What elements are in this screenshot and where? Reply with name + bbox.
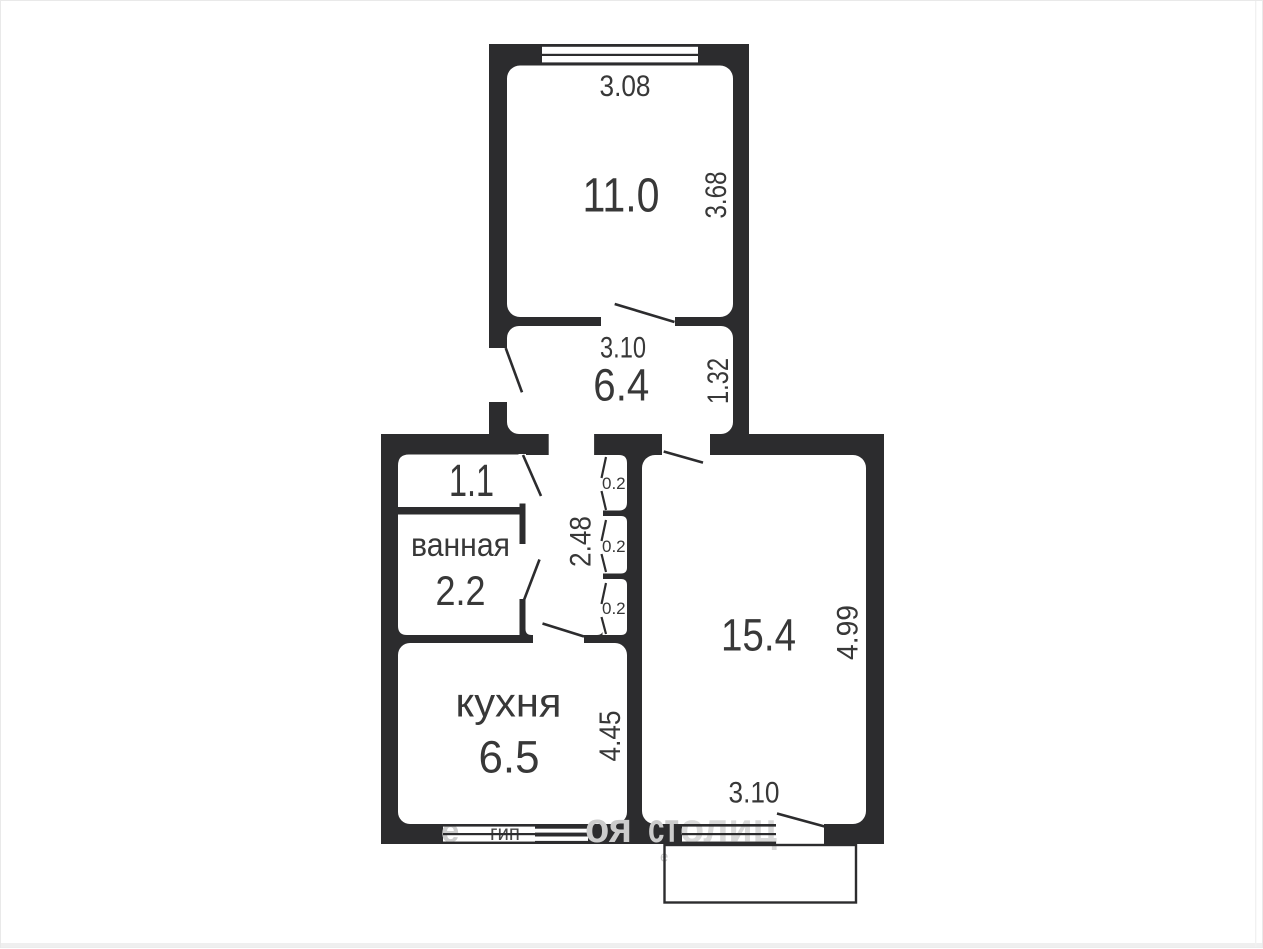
svg-text:4.99: 4.99 bbox=[832, 605, 865, 660]
svg-text:2.2: 2.2 bbox=[436, 567, 486, 614]
svg-text:2.48: 2.48 bbox=[564, 516, 597, 567]
svg-text:3.08: 3.08 bbox=[600, 70, 651, 103]
svg-text:1.1: 1.1 bbox=[449, 455, 494, 506]
svg-text:11.0: 11.0 bbox=[583, 169, 660, 223]
svg-text:ванная: ванная bbox=[411, 526, 510, 563]
svg-text:3.10: 3.10 bbox=[729, 777, 780, 810]
svg-text:1.32: 1.32 bbox=[702, 358, 735, 404]
svg-text:6.4: 6.4 bbox=[593, 360, 649, 411]
svg-text:кухня: кухня bbox=[456, 680, 562, 726]
svg-text:3.10: 3.10 bbox=[600, 332, 646, 365]
svg-text:4.45: 4.45 bbox=[594, 711, 627, 762]
svg-text:оя: оя bbox=[585, 804, 632, 851]
svg-text:0.2: 0.2 bbox=[602, 599, 626, 618]
svg-text:3.68: 3.68 bbox=[700, 172, 733, 219]
svg-text:0.2: 0.2 bbox=[602, 537, 626, 556]
svg-text:0.2: 0.2 bbox=[602, 474, 626, 493]
svg-text:15.4: 15.4 bbox=[721, 610, 796, 661]
svg-text:6.5: 6.5 bbox=[479, 732, 540, 783]
